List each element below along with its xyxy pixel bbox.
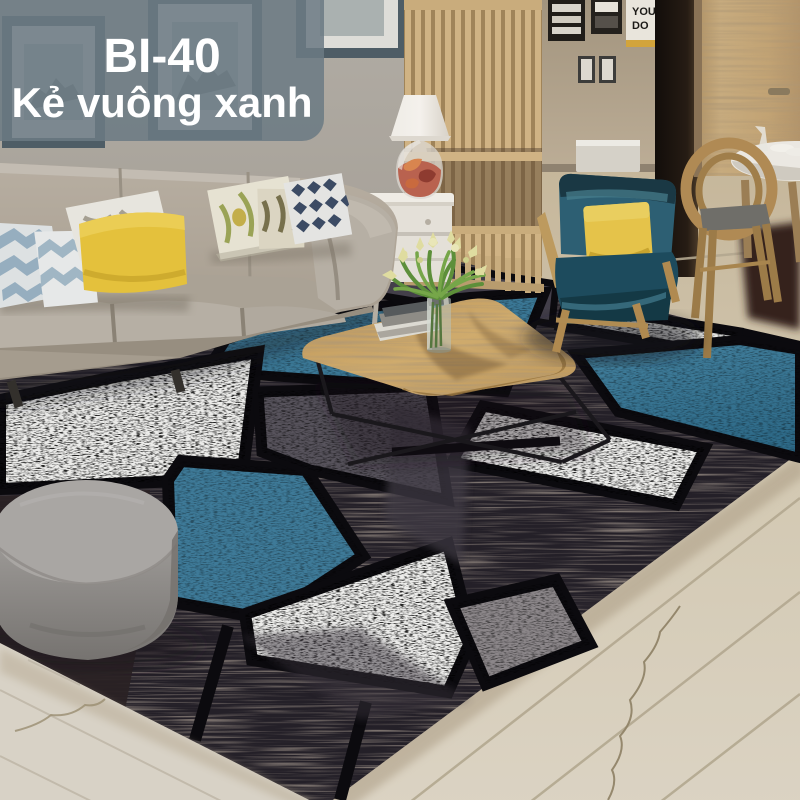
svg-text:YOU: YOU xyxy=(632,6,656,18)
svg-text:DO: DO xyxy=(632,20,649,32)
svg-text:BI-40: BI-40 xyxy=(103,30,220,83)
svg-text:Kẻ vuông xanh: Kẻ vuông xanh xyxy=(11,79,312,126)
